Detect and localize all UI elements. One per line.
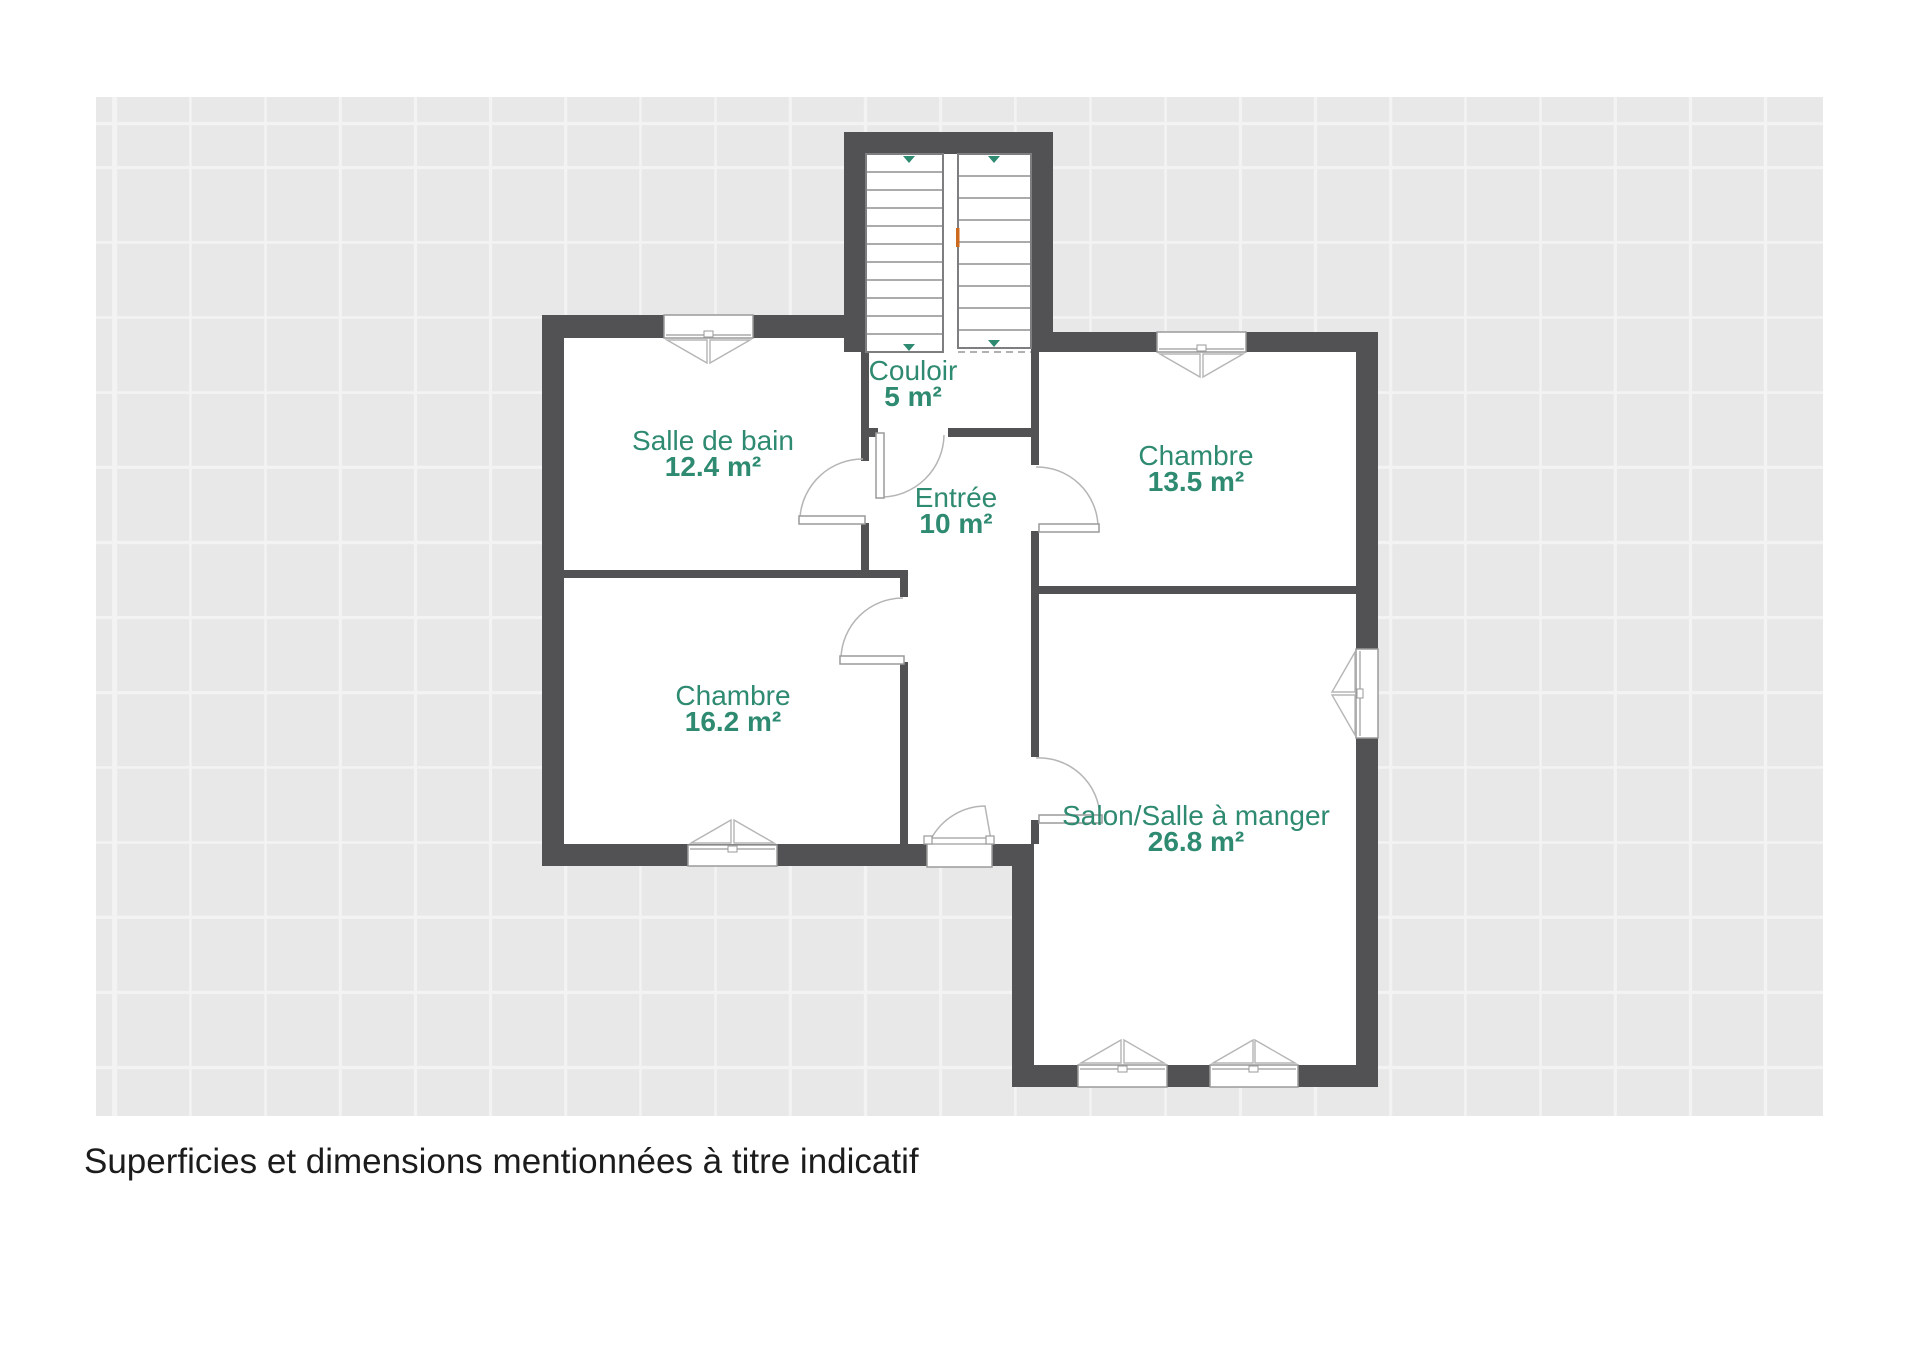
disclaimer-caption: Superficies et dimensions mentionnées à …	[84, 1142, 919, 1182]
room-area: 13.5 m²	[1138, 469, 1253, 495]
room-area: 12.4 m²	[632, 454, 794, 480]
room-label-couloir: Couloir 5 m²	[869, 358, 958, 410]
room-area: 16.2 m²	[675, 709, 790, 735]
room-area: 26.8 m²	[1062, 829, 1330, 855]
room-label-chambre-13: Chambre 13.5 m²	[1138, 443, 1253, 495]
room-label-entree: Entrée 10 m²	[915, 485, 998, 537]
room-label-salle-de-bain: Salle de bain 12.4 m²	[632, 428, 794, 480]
room-area: 5 m²	[869, 384, 958, 410]
floor-plan-page: { "canvas": { "background": "#e8e8e8", "…	[0, 0, 1920, 1357]
room-label-chambre-16: Chambre 16.2 m²	[675, 683, 790, 735]
room-area: 10 m²	[915, 511, 998, 537]
stair-handrail-marker	[956, 228, 960, 247]
room-label-salon: Salon/Salle à manger 26.8 m²	[1062, 803, 1330, 855]
